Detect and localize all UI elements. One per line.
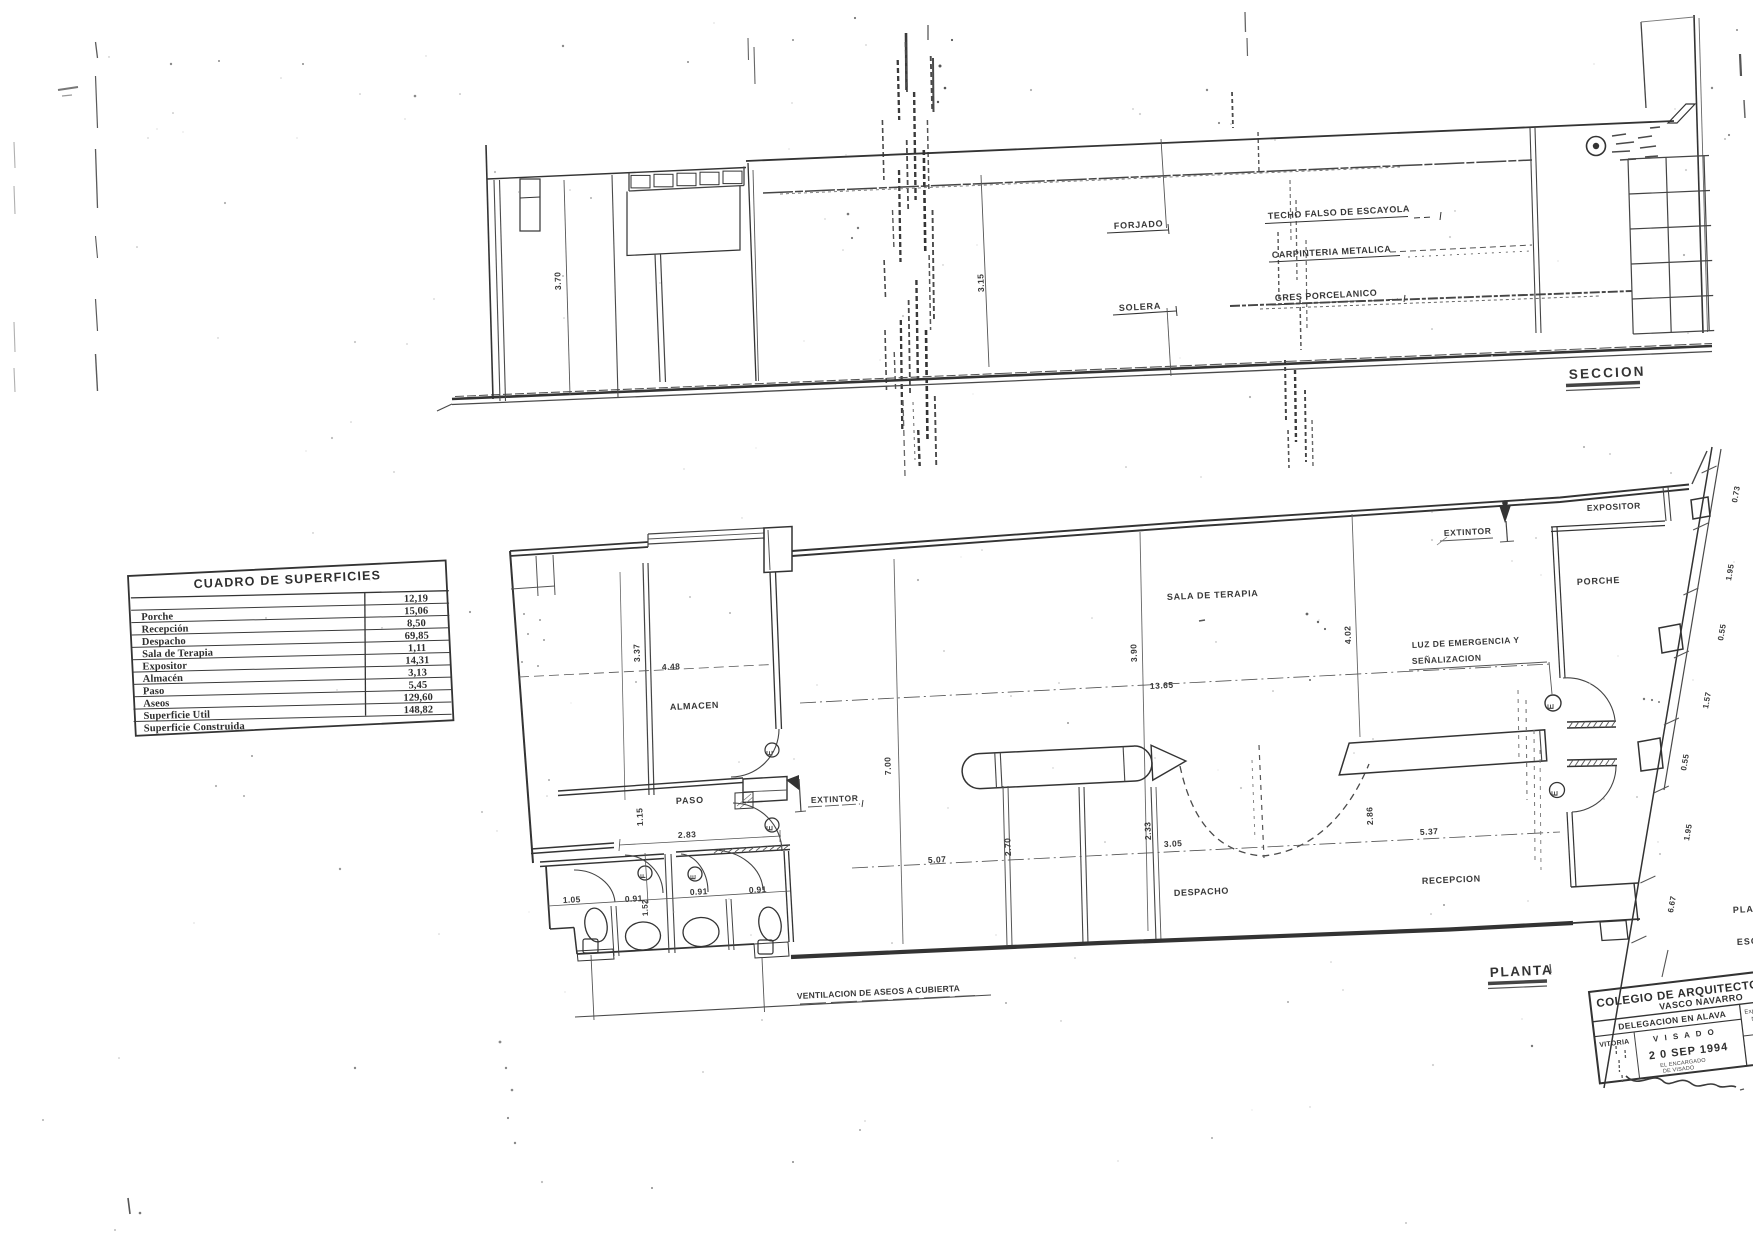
svg-text:5.07: 5.07 — [928, 854, 947, 865]
svg-text:PASO: PASO — [676, 795, 704, 806]
svg-text:ESC: ESC — [1737, 936, 1753, 947]
svg-text:3.90: 3.90 — [1128, 643, 1139, 662]
svg-text:2.86: 2.86 — [1364, 806, 1375, 825]
svg-text:PLANTA: PLANTA — [1489, 962, 1553, 980]
svg-text:3.70: 3.70 — [552, 271, 563, 290]
svg-text:1.05: 1.05 — [563, 894, 581, 905]
svg-text:Superficie Construida: Superficie Construida — [144, 721, 246, 734]
svg-text:1.15: 1.15 — [634, 807, 645, 826]
svg-text:1,11: 1,11 — [408, 643, 426, 654]
svg-text:1.52: 1.52 — [640, 899, 650, 916]
svg-text:3.05: 3.05 — [1164, 838, 1183, 849]
svg-text:Paso: Paso — [143, 686, 165, 697]
svg-text:13.65: 13.65 — [1150, 680, 1174, 691]
svg-text:PLAN: PLAN — [1733, 904, 1753, 915]
svg-text:3,13: 3,13 — [408, 668, 427, 679]
svg-text:3.37: 3.37 — [631, 643, 642, 662]
svg-text:5,45: 5,45 — [408, 680, 427, 691]
svg-text:3.15: 3.15 — [975, 273, 986, 292]
svg-text:2.83: 2.83 — [678, 829, 697, 840]
svg-text:0.91: 0.91 — [690, 886, 708, 897]
svg-text:0.91: 0.91 — [749, 884, 767, 895]
svg-text:E: E — [766, 750, 775, 756]
svg-text:5.37: 5.37 — [1420, 826, 1439, 837]
svg-text:4.02: 4.02 — [1342, 625, 1353, 644]
svg-text:E: E — [1551, 790, 1560, 796]
svg-text:2.33: 2.33 — [1142, 821, 1153, 840]
svg-text:E: E — [689, 875, 698, 880]
svg-text:E: E — [766, 825, 775, 831]
svg-text:EXTINTOR: EXTINTOR — [811, 793, 859, 805]
svg-text:8,50: 8,50 — [407, 618, 426, 629]
svg-text:2.70: 2.70 — [1002, 837, 1013, 856]
svg-text:E: E — [1546, 703, 1556, 709]
svg-text:4.48: 4.48 — [662, 661, 681, 672]
svg-text:7.00: 7.00 — [882, 756, 893, 775]
svg-text:PORCHE: PORCHE — [1577, 575, 1621, 587]
